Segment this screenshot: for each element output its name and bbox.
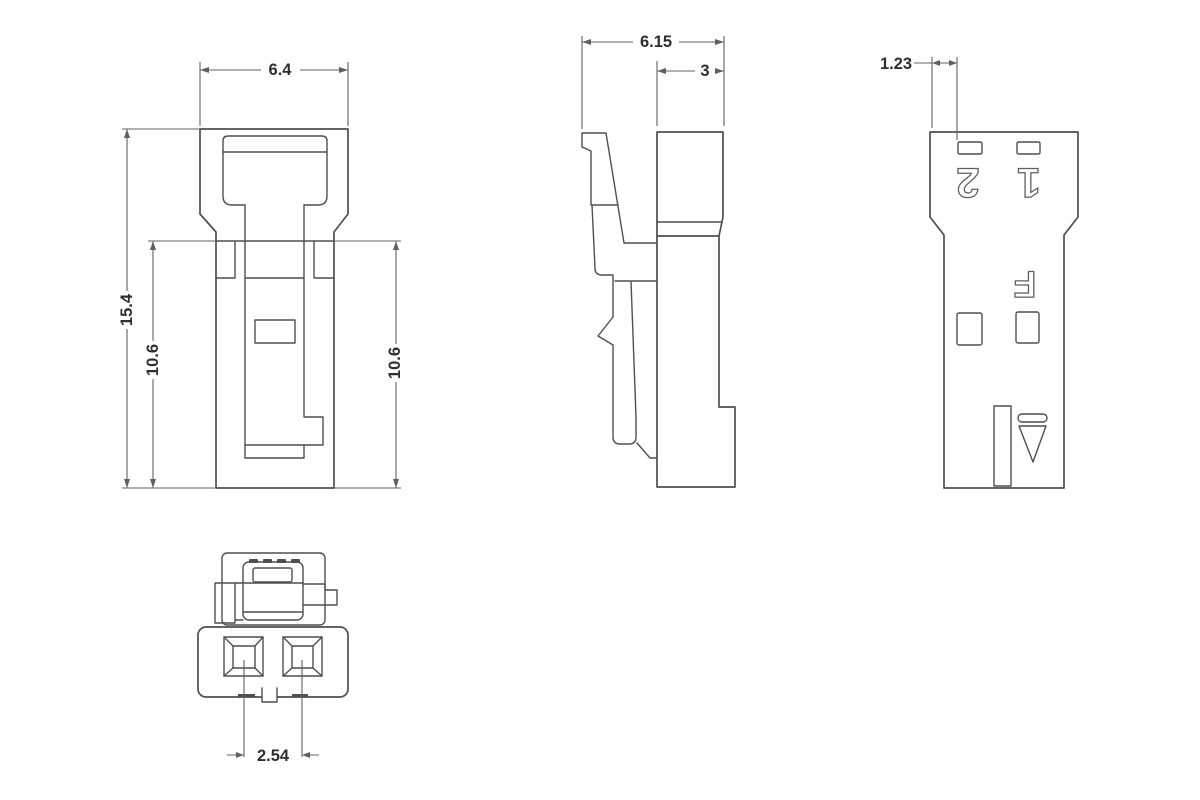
rear-window-left (957, 313, 982, 345)
gate-mark-bar (1018, 414, 1047, 422)
bottom-rear-housing (222, 553, 325, 625)
dim-rear-cavity-offset: 1.23 (880, 55, 912, 73)
dim-side-upper-depth: 3 (700, 62, 709, 80)
dim-side-depth: 6.15 (640, 33, 672, 51)
rear-dim-lines (914, 57, 957, 140)
rear-window-right (1016, 312, 1039, 343)
rear-outline (930, 132, 1078, 488)
front-cavity-outline (223, 136, 327, 205)
bottom-dim-lines (227, 660, 319, 757)
rear-view: 1.23 2 1 F (880, 55, 1078, 488)
engraved-mark-f: F (1014, 264, 1037, 305)
engraved-position-2: 2 (956, 160, 979, 207)
engraved-position-1: 1 (1017, 160, 1040, 207)
front-outline (200, 129, 348, 488)
rear-key-slot (994, 406, 1011, 486)
bottom-front-face (198, 627, 348, 697)
latch-grip-pad (253, 568, 292, 582)
dim-front-height: 15.4 (118, 293, 136, 326)
side-latch-outline (582, 133, 657, 458)
rear-slot-2 (958, 142, 982, 154)
rear-slot-1 (1017, 142, 1040, 154)
gate-mark-triangle-icon (1019, 426, 1046, 462)
side-body-outline (657, 132, 735, 487)
dim-front-inner-left: 10.6 (144, 344, 162, 376)
bottom-internal-lines (215, 583, 337, 623)
bottom-view: 2.54 (198, 553, 348, 765)
side-view: 6.15 3 (582, 33, 735, 487)
front-internal-lines (216, 152, 334, 458)
dim-front-inner-right: 10.6 (386, 347, 404, 379)
front-dim-lines (122, 62, 401, 488)
dim-pitch: 2.54 (257, 747, 290, 765)
dim-front-width: 6.4 (269, 61, 293, 79)
front-view: 6.4 15.4 10.6 10.6 (118, 61, 404, 488)
notch-mask (263, 694, 277, 700)
front-latch-window (255, 320, 295, 343)
technical-drawing-canvas: 6.4 15.4 10.6 10.6 6.15 3 1.23 2 1 F (0, 0, 1200, 800)
cavity-chamfer-lines (224, 637, 322, 676)
connector-drawing: 6.4 15.4 10.6 10.6 6.15 3 1.23 2 1 F (0, 0, 1200, 800)
